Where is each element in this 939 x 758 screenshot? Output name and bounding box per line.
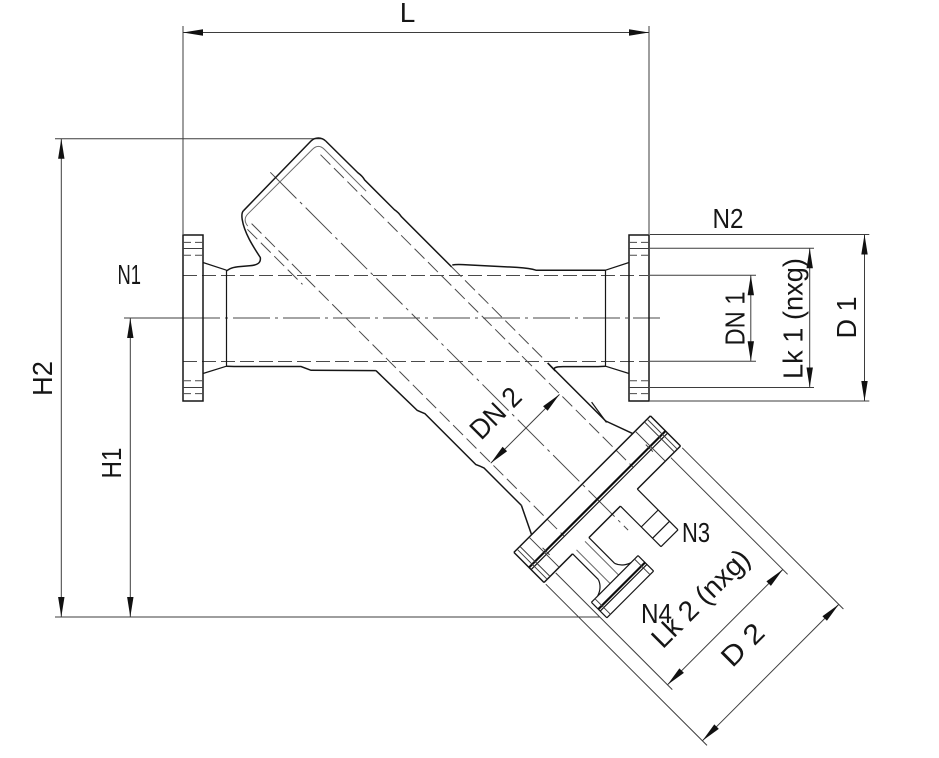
svg-text:L: L xyxy=(400,0,416,28)
svg-text:H2: H2 xyxy=(27,361,58,396)
svg-text:N1: N1 xyxy=(118,259,142,290)
svg-text:N3: N3 xyxy=(682,517,710,548)
svg-text:DN 1: DN 1 xyxy=(720,292,751,346)
svg-text:N2: N2 xyxy=(713,203,744,234)
svg-text:Lk 1 (nxg): Lk 1 (nxg) xyxy=(778,258,809,379)
svg-text:D 1: D 1 xyxy=(831,297,862,339)
svg-text:D 2: D 2 xyxy=(715,617,771,673)
svg-text:H1: H1 xyxy=(96,448,127,479)
